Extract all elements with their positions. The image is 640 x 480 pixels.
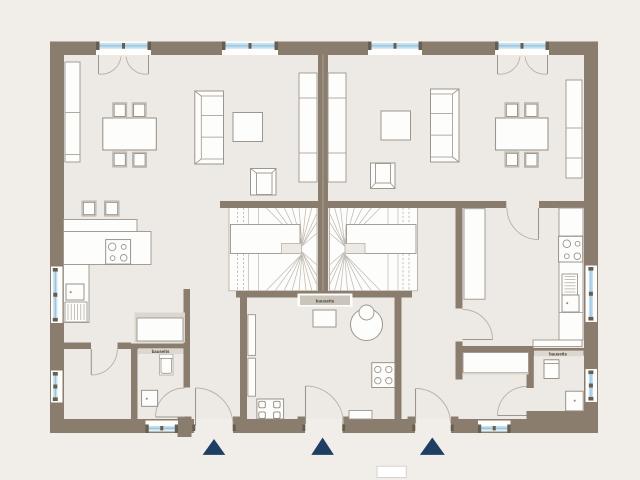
svg-text:bauseits: bauseits: [152, 349, 170, 354]
svg-text:bauseits: bauseits: [316, 298, 335, 303]
svg-text:bauseits: bauseits: [549, 351, 567, 356]
